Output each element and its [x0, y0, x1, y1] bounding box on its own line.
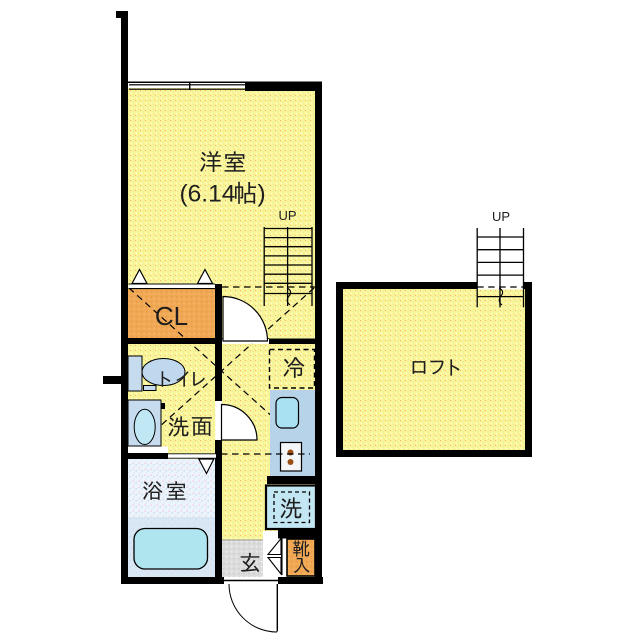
svg-text:UP: UP	[278, 208, 296, 223]
svg-text:(6.14: (6.14	[180, 181, 236, 208]
svg-text:UP: UP	[492, 209, 510, 224]
svg-text:CL: CL	[155, 301, 188, 331]
svg-text:): )	[258, 181, 266, 208]
